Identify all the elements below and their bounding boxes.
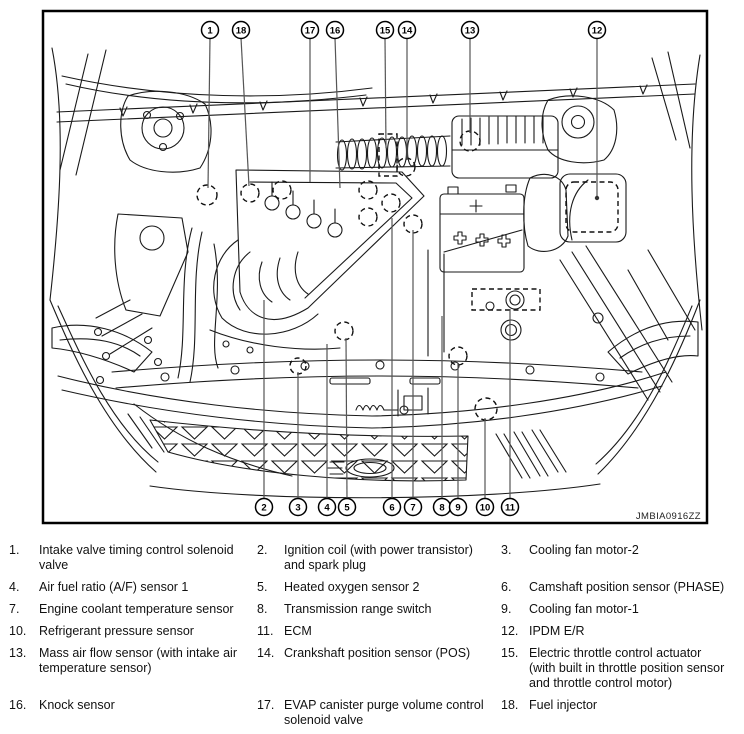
legend-item-num: 7. xyxy=(6,602,39,617)
svg-text:18: 18 xyxy=(236,26,247,37)
svg-text:9: 9 xyxy=(455,503,460,514)
legend: 1. Intake valve timing control solenoid … xyxy=(0,537,744,728)
legend-item-num: 10. xyxy=(6,624,39,639)
legend-item-label: Camshaft position sensor (PHASE) xyxy=(529,580,740,595)
legend-item-num: 13. xyxy=(6,646,39,691)
legend-item-label: Fuel injector xyxy=(529,698,740,728)
callout-2: 2 xyxy=(256,499,273,516)
svg-text:3: 3 xyxy=(295,503,300,514)
callout-18: 18 xyxy=(233,22,250,39)
legend-item-label: Mass air flow sensor (with intake air te… xyxy=(39,646,254,691)
legend-item-label: Intake valve timing control solenoid val… xyxy=(39,543,254,573)
legend-item-label: Cooling fan motor-1 xyxy=(529,602,740,617)
callout-16: 16 xyxy=(327,22,344,39)
engine-bay-figure: 1 18 17 16 15 14 13 12 2 3 4 5 6 7 8 9 1… xyxy=(0,0,744,535)
callout-11: 11 xyxy=(502,499,519,516)
svg-text:10: 10 xyxy=(480,503,491,514)
callouts-bottom: 2 3 4 5 6 7 8 9 10 11 xyxy=(256,499,519,516)
legend-item-label: Cooling fan motor-2 xyxy=(529,543,740,573)
svg-text:11: 11 xyxy=(505,503,516,514)
legend-item-label: Engine coolant temperature sensor xyxy=(39,602,254,617)
legend-item-num: 15. xyxy=(498,646,529,691)
legend-item-label: Crankshaft position sensor (POS) xyxy=(284,646,498,691)
legend-item-label: ECM xyxy=(284,624,498,639)
legend-item-num: 1. xyxy=(6,543,39,573)
svg-text:13: 13 xyxy=(465,26,476,37)
callout-15: 15 xyxy=(377,22,394,39)
svg-text:1: 1 xyxy=(207,26,213,37)
svg-text:6: 6 xyxy=(389,503,394,514)
svg-text:17: 17 xyxy=(305,26,316,37)
svg-text:12: 12 xyxy=(592,26,603,37)
legend-item-num: 8. xyxy=(254,602,284,617)
callout-14: 14 xyxy=(399,22,416,39)
callout-12: 12 xyxy=(589,22,606,39)
legend-item-num: 4. xyxy=(6,580,39,595)
legend-item-num: 17. xyxy=(254,698,284,728)
svg-text:8: 8 xyxy=(439,503,444,514)
callout-6: 6 xyxy=(384,499,401,516)
svg-text:7: 7 xyxy=(410,503,415,514)
svg-text:5: 5 xyxy=(344,503,350,514)
svg-text:15: 15 xyxy=(380,26,391,37)
legend-item-label: Refrigerant pressure sensor xyxy=(39,624,254,639)
callout-17: 17 xyxy=(302,22,319,39)
legend-item-label: IPDM E/R xyxy=(529,624,740,639)
callout-10: 10 xyxy=(477,499,494,516)
legend-item-num: 6. xyxy=(498,580,529,595)
svg-text:2: 2 xyxy=(261,503,266,514)
callout-13: 13 xyxy=(462,22,479,39)
callout-5: 5 xyxy=(339,499,356,516)
leader-endpoint-dot xyxy=(595,196,599,200)
legend-item-num: 12. xyxy=(498,624,529,639)
callout-1: 1 xyxy=(202,22,219,39)
legend-item-num: 11. xyxy=(254,624,284,639)
callout-7: 7 xyxy=(405,499,422,516)
legend-item-label: Transmission range switch xyxy=(284,602,498,617)
figure-id-watermark: JMBIA0916ZZ xyxy=(636,511,701,522)
callout-9: 9 xyxy=(450,499,467,516)
callout-8: 8 xyxy=(434,499,451,516)
legend-item-label: Knock sensor xyxy=(39,698,254,728)
legend-item-label: Ignition coil (with power transistor) an… xyxy=(284,543,498,573)
legend-item-num: 3. xyxy=(498,543,529,573)
legend-item-num: 2. xyxy=(254,543,284,573)
legend-item-num: 5. xyxy=(254,580,284,595)
legend-item-num: 14. xyxy=(254,646,284,691)
callout-3: 3 xyxy=(290,499,307,516)
svg-text:16: 16 xyxy=(330,26,341,37)
callout-4: 4 xyxy=(319,499,336,516)
legend-item-label: EVAP canister purge volume control solen… xyxy=(284,698,498,728)
legend-item-label: Air fuel ratio (A/F) sensor 1 xyxy=(39,580,254,595)
legend-item-label: Electric throttle control actuator (with… xyxy=(529,646,740,691)
svg-text:4: 4 xyxy=(324,503,330,514)
legend-item-num: 18. xyxy=(498,698,529,728)
engine-bay-diagram: 1 18 17 16 15 14 13 12 2 3 4 5 6 7 8 9 1… xyxy=(0,0,744,535)
service-manual-page: 1 18 17 16 15 14 13 12 2 3 4 5 6 7 8 9 1… xyxy=(0,0,744,734)
legend-item-num: 16. xyxy=(6,698,39,728)
legend-item-label: Heated oxygen sensor 2 xyxy=(284,580,498,595)
svg-text:14: 14 xyxy=(402,26,413,37)
legend-item-num: 9. xyxy=(498,602,529,617)
